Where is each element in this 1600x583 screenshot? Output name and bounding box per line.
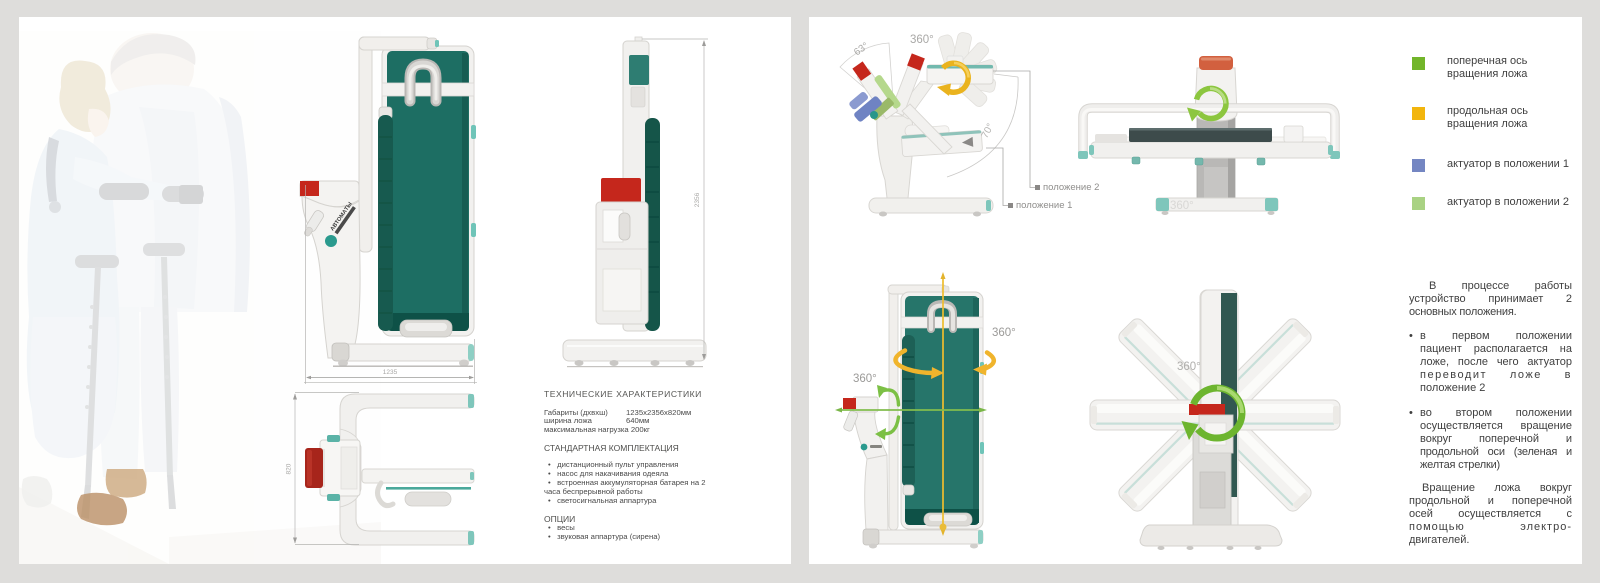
svg-text:63°: 63°	[852, 41, 871, 59]
svg-text:70°: 70°	[980, 122, 997, 141]
svg-text:2356: 2356	[694, 192, 701, 207]
svg-text:1235: 1235	[383, 369, 398, 376]
svg-text:820: 820	[286, 463, 293, 474]
